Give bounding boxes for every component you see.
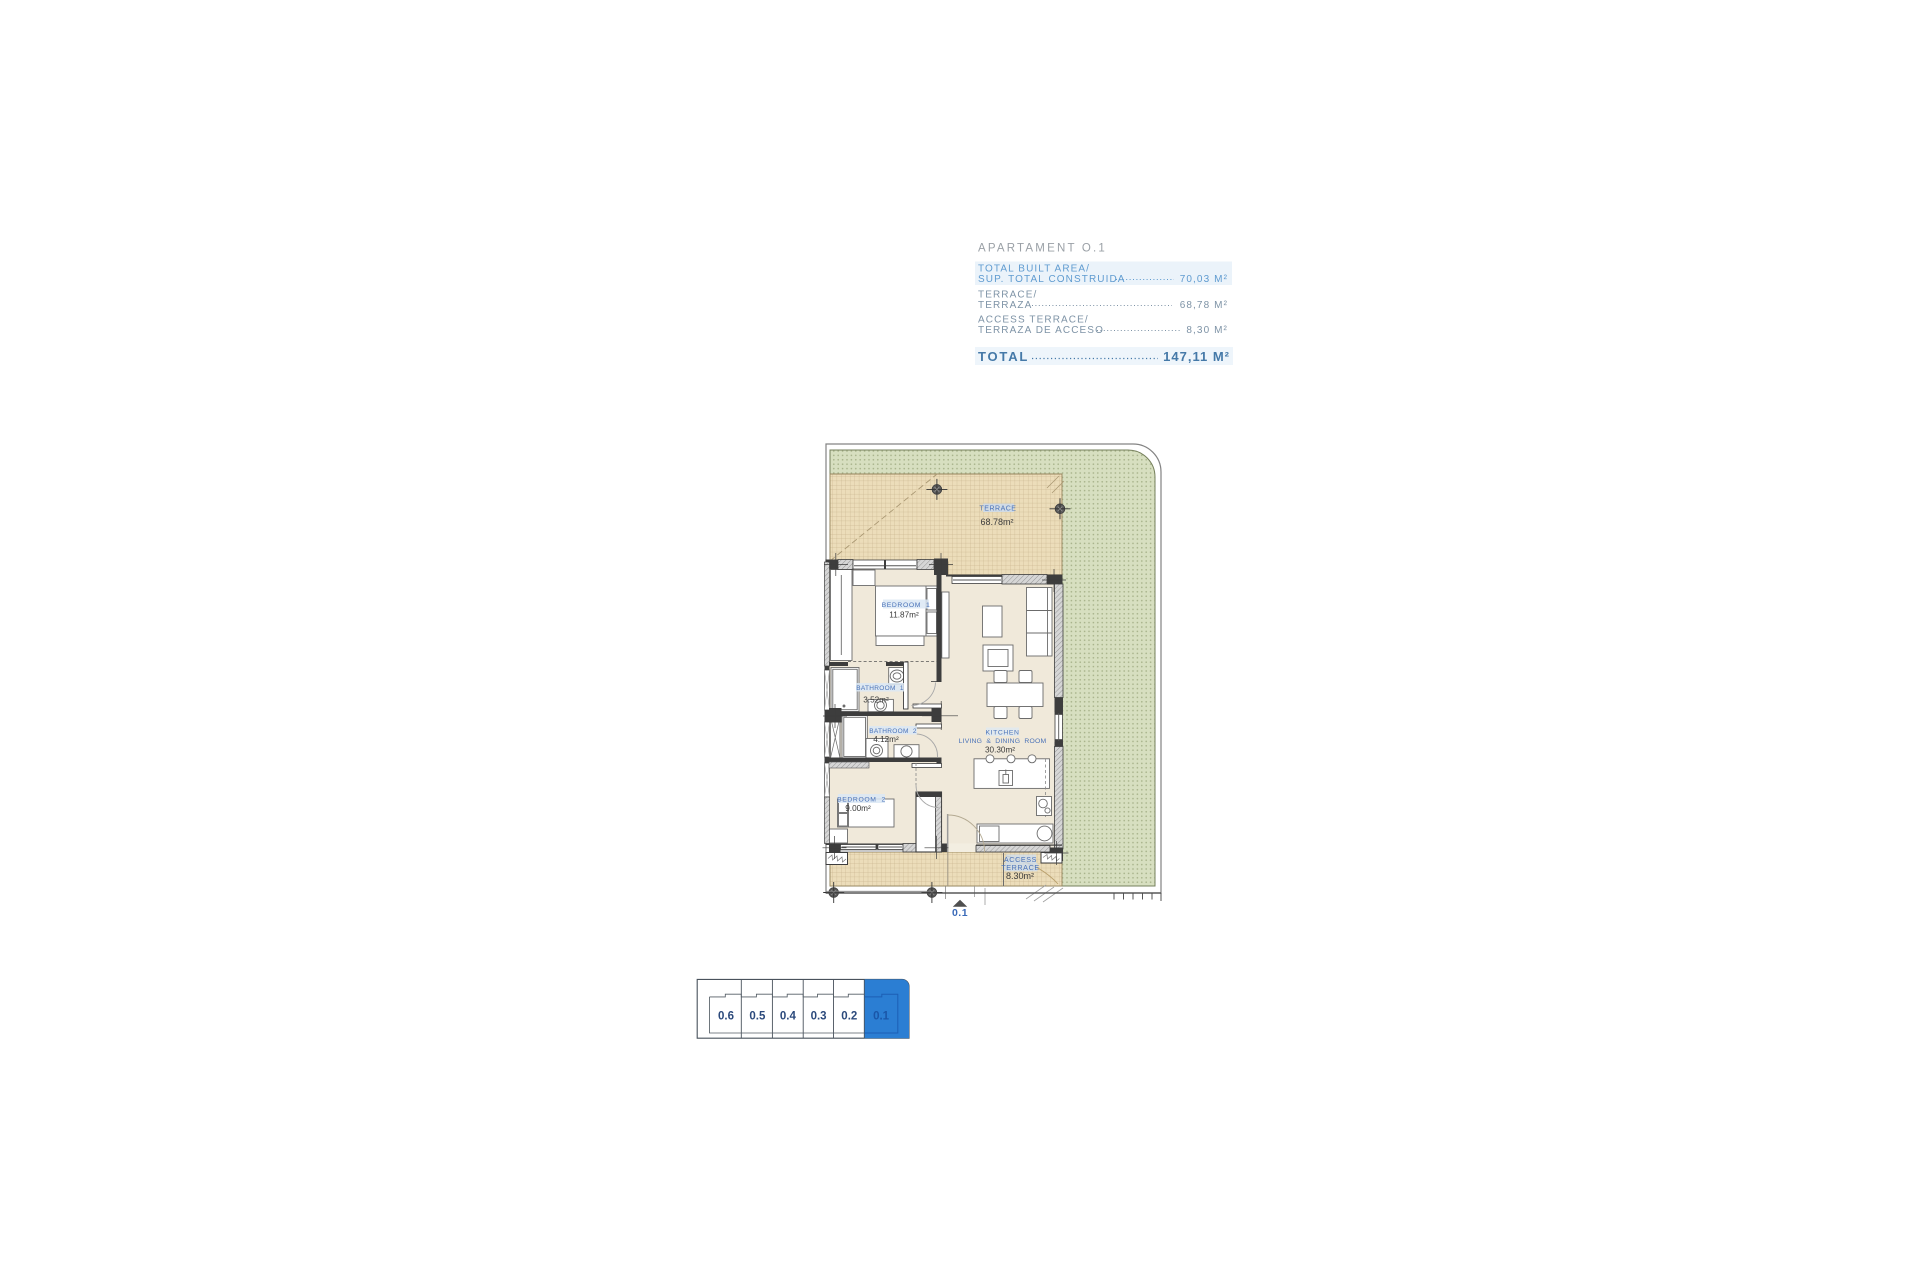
svg-text:4.12m²: 4.12m² — [873, 735, 899, 744]
svg-text:BATHROOM 2: BATHROOM 2 — [869, 728, 917, 735]
svg-text:30.30m²: 30.30m² — [985, 746, 1015, 755]
svg-text:APARTAMENT O.1: APARTAMENT O.1 — [978, 243, 1107, 255]
svg-text:70,03 M²: 70,03 M² — [1180, 274, 1228, 285]
svg-text:SUP. TOTAL CONSTRUIDA: SUP. TOTAL CONSTRUIDA — [978, 274, 1126, 285]
svg-text:0.2: 0.2 — [841, 1011, 857, 1023]
svg-text:0.4: 0.4 — [780, 1011, 797, 1023]
svg-text:0.3: 0.3 — [811, 1011, 827, 1023]
svg-text:3.52m²: 3.52m² — [863, 696, 889, 705]
svg-text:8.30m²: 8.30m² — [1006, 871, 1034, 881]
svg-text:0.6: 0.6 — [718, 1011, 734, 1023]
svg-text:147,11 M²: 147,11 M² — [1163, 349, 1230, 364]
svg-text:8,30 M²: 8,30 M² — [1186, 325, 1228, 336]
svg-text:TERRACE: TERRACE — [980, 506, 1017, 513]
svg-text:TOTAL BUILT AREA/: TOTAL BUILT AREA/ — [978, 264, 1090, 275]
svg-text:0.1: 0.1 — [873, 1011, 890, 1023]
svg-text:0.5: 0.5 — [749, 1011, 766, 1023]
svg-text:11.87m²: 11.87m² — [889, 611, 919, 620]
svg-text:BEDROOM 2: BEDROOM 2 — [837, 797, 886, 804]
svg-text:68.78m²: 68.78m² — [980, 517, 1013, 527]
svg-text:TERRAZA DE ACCESO: TERRAZA DE ACCESO — [978, 325, 1104, 336]
svg-text:TERRACE/: TERRACE/ — [978, 290, 1037, 301]
svg-text:0.1: 0.1 — [952, 907, 968, 919]
svg-text:LIVING & DINING ROOM: LIVING & DINING ROOM — [959, 738, 1047, 745]
svg-text:BATHROOM 1: BATHROOM 1 — [856, 685, 904, 692]
svg-text:KITCHEN: KITCHEN — [985, 730, 1019, 737]
svg-text:9.00m²: 9.00m² — [845, 804, 871, 813]
svg-text:ACCESS TERRACE/: ACCESS TERRACE/ — [978, 315, 1089, 326]
svg-text:BEDROOM 1: BEDROOM 1 — [882, 602, 931, 609]
svg-text:68,78 M²: 68,78 M² — [1180, 300, 1228, 311]
svg-text:TOTAL: TOTAL — [978, 349, 1029, 364]
svg-text:TERRAZA: TERRAZA — [978, 300, 1032, 311]
